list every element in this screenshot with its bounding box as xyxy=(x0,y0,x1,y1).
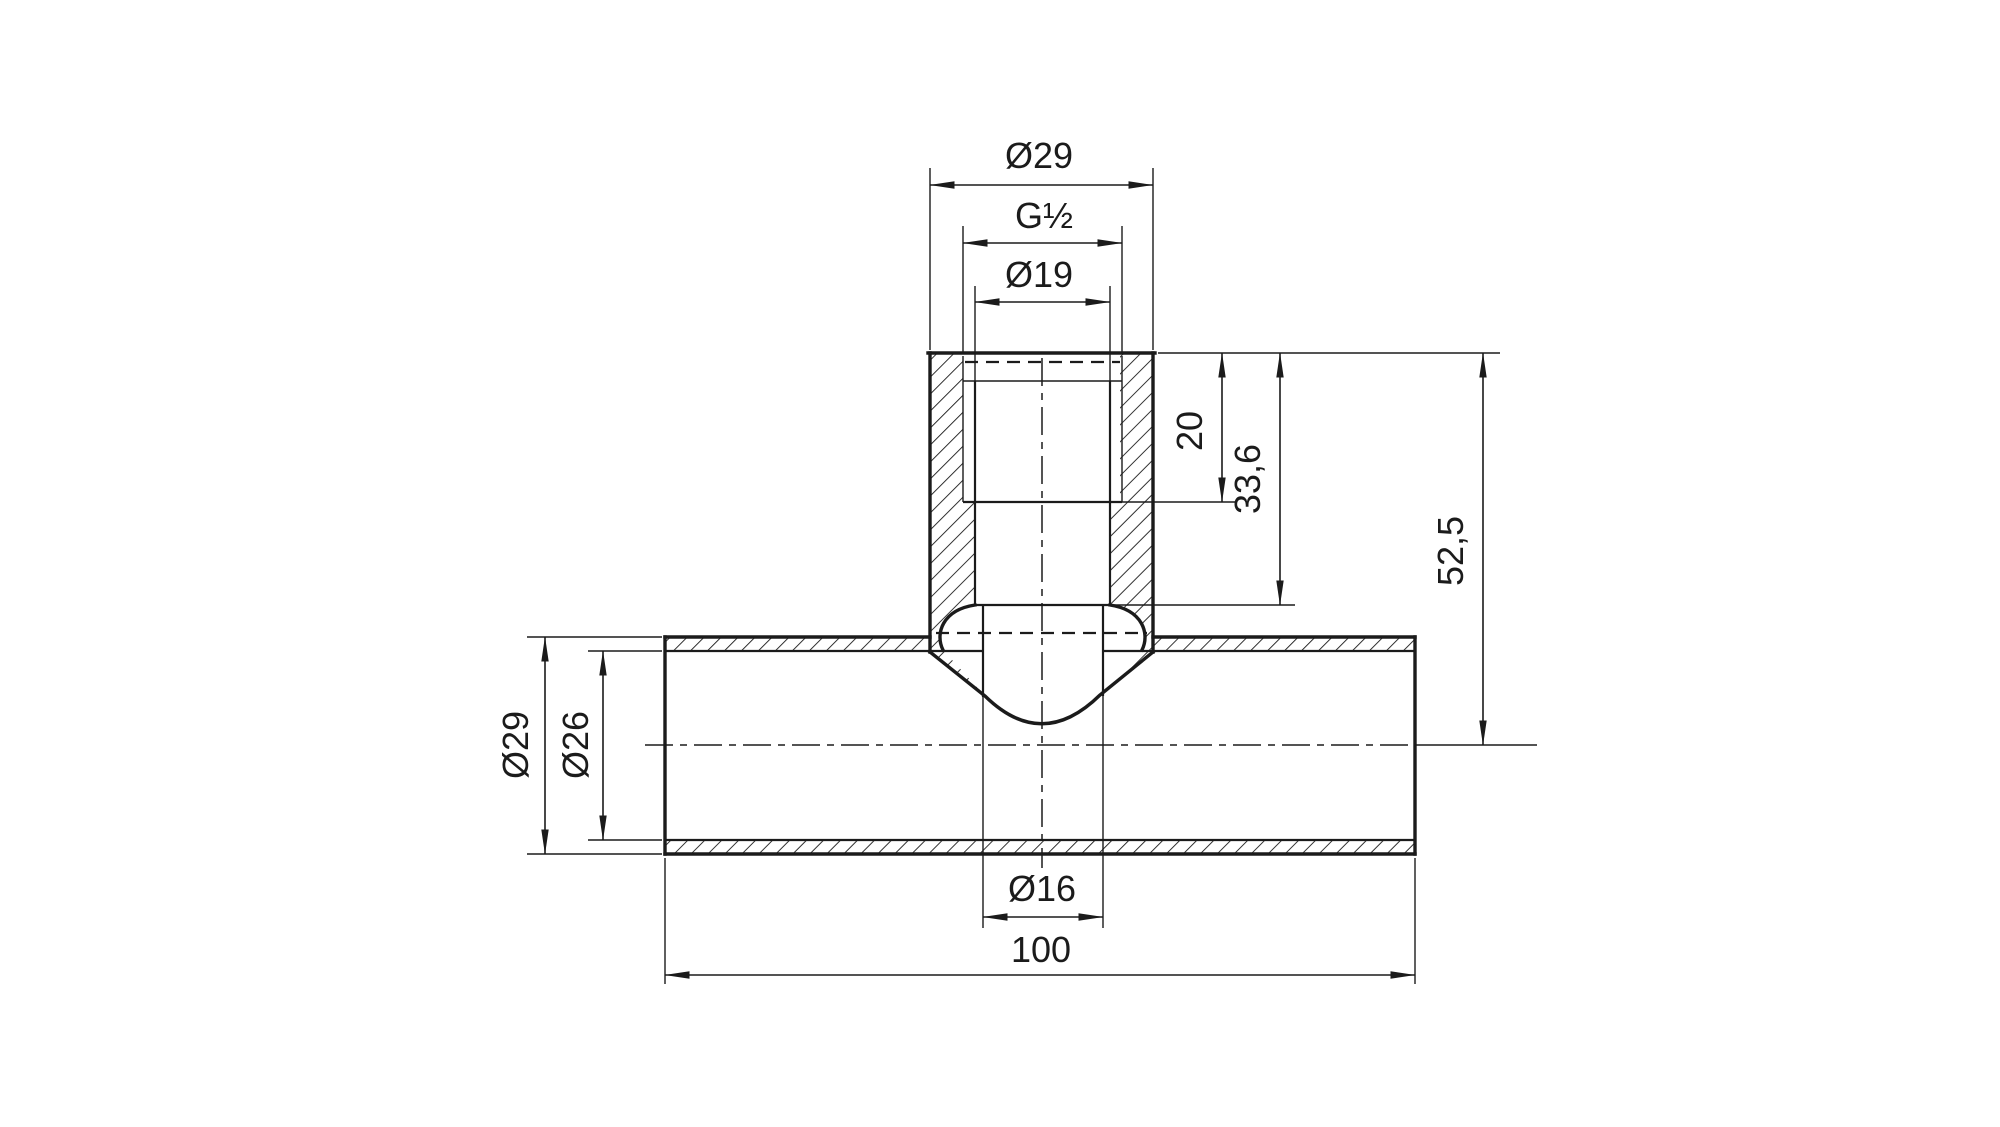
section-hatching xyxy=(665,353,1415,854)
hatch-pipe-bottom xyxy=(665,840,1415,854)
dim-branch-through-hole: Ø16 xyxy=(983,696,1103,928)
hatch-pipe-top-left xyxy=(665,637,930,651)
dim-label-overall-length: 100 xyxy=(1011,929,1071,970)
dim-label-thread-depth: 20 xyxy=(1169,411,1210,451)
tee-fitting-outline xyxy=(665,353,1415,854)
drawing-page: Ø29 G½ Ø19 20 33,6 xyxy=(0,0,2000,1127)
dim-branch-top-to-pipe-axis: 52,5 xyxy=(1430,353,1483,745)
dim-label-branch-outer-diameter: Ø29 xyxy=(1005,135,1073,176)
dim-label-branch-top-to-pipe-axis: 52,5 xyxy=(1430,516,1471,586)
dim-label-thread-bore-diameter: Ø19 xyxy=(1005,254,1073,295)
technical-drawing: Ø29 G½ Ø19 20 33,6 xyxy=(0,0,2000,1127)
dimensions: Ø29 G½ Ø19 20 33,6 xyxy=(495,135,1500,984)
centerlines xyxy=(645,358,1537,868)
dim-label-bore-depth: 33,6 xyxy=(1227,444,1268,514)
dim-label-thread-size: G½ xyxy=(1015,195,1073,236)
dim-label-pipe-inner-diameter: Ø26 xyxy=(555,711,596,779)
dim-label-branch-through-hole: Ø16 xyxy=(1008,868,1076,909)
dim-label-pipe-outer-diameter: Ø29 xyxy=(495,711,536,779)
hatch-branch-left-wall xyxy=(930,353,985,696)
hatch-pipe-top-right xyxy=(1153,637,1415,651)
